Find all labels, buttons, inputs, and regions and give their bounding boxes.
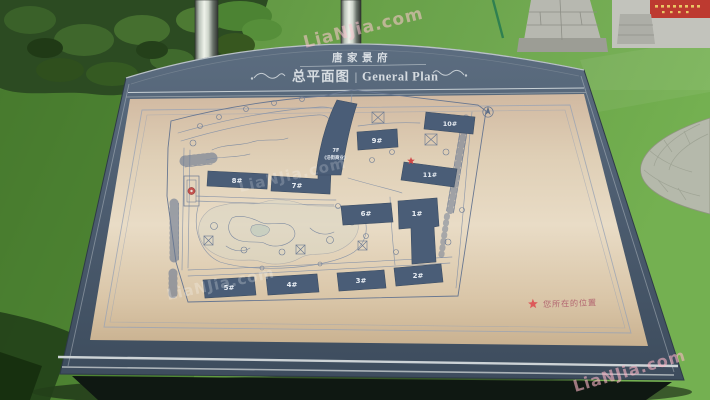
flourish-left-dot-icon — [251, 77, 253, 79]
building-4-label: 4# — [287, 281, 298, 289]
street-commercial-floors: 7F — [333, 148, 340, 154]
building-6-label: 6# — [361, 210, 372, 218]
plan-title-cn: 总平面图 — [292, 68, 350, 84]
plan-title-en: General Plan — [362, 70, 438, 84]
stone-pillar-small — [617, 14, 655, 44]
stone-wall — [517, 0, 710, 52]
legend-label: 您所在的位置 — [543, 297, 597, 309]
red-banner — [650, 0, 710, 18]
building-10-label: 10# — [443, 120, 458, 128]
building-3-label: 3# — [356, 277, 367, 285]
flourish-right-dot-icon — [465, 74, 467, 76]
building-1-label: 1# — [412, 210, 423, 218]
site-plan-sign-photo: 唐家景府 总平面图 | General Plan — [0, 0, 710, 400]
building-9-label: 9# — [372, 137, 383, 145]
photo-canvas: 唐家景府 总平面图 | General Plan — [0, 0, 710, 400]
plan-title-divider: | — [355, 70, 358, 84]
project-name: 唐家景府 — [332, 51, 392, 64]
building-11-label: 11# — [423, 171, 438, 179]
building-2-label: 2# — [413, 272, 424, 280]
